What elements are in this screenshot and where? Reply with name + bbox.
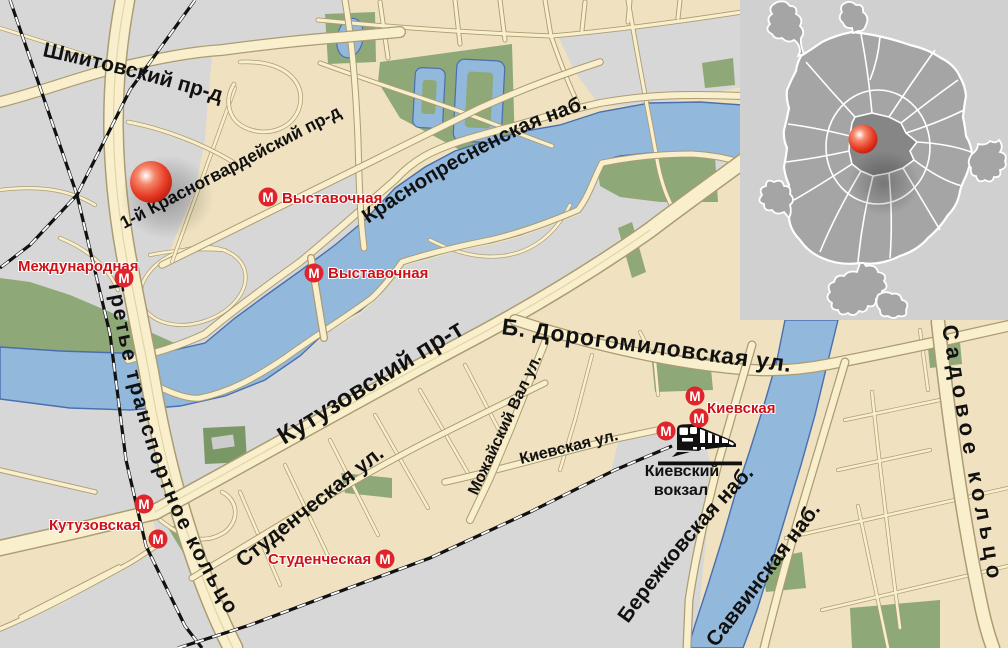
svg-text:М: М: [308, 266, 319, 281]
svg-text:Киевская: Киевская: [707, 400, 776, 417]
svg-text:М: М: [379, 552, 390, 567]
svg-text:М: М: [693, 411, 704, 426]
svg-text:Кутузовская: Кутузовская: [49, 517, 141, 534]
svg-text:Выставочная: Выставочная: [282, 190, 382, 207]
svg-text:М: М: [660, 424, 671, 439]
svg-text:М: М: [118, 271, 129, 286]
svg-text:вокзал: вокзал: [654, 482, 708, 499]
svg-text:Студенческая: Студенческая: [268, 551, 371, 568]
svg-text:М: М: [138, 497, 149, 512]
svg-text:М: М: [152, 532, 163, 547]
svg-text:Выставочная: Выставочная: [328, 265, 428, 282]
svg-text:М: М: [689, 389, 700, 404]
svg-text:М: М: [262, 190, 273, 205]
svg-text:Киевский: Киевский: [645, 463, 720, 480]
